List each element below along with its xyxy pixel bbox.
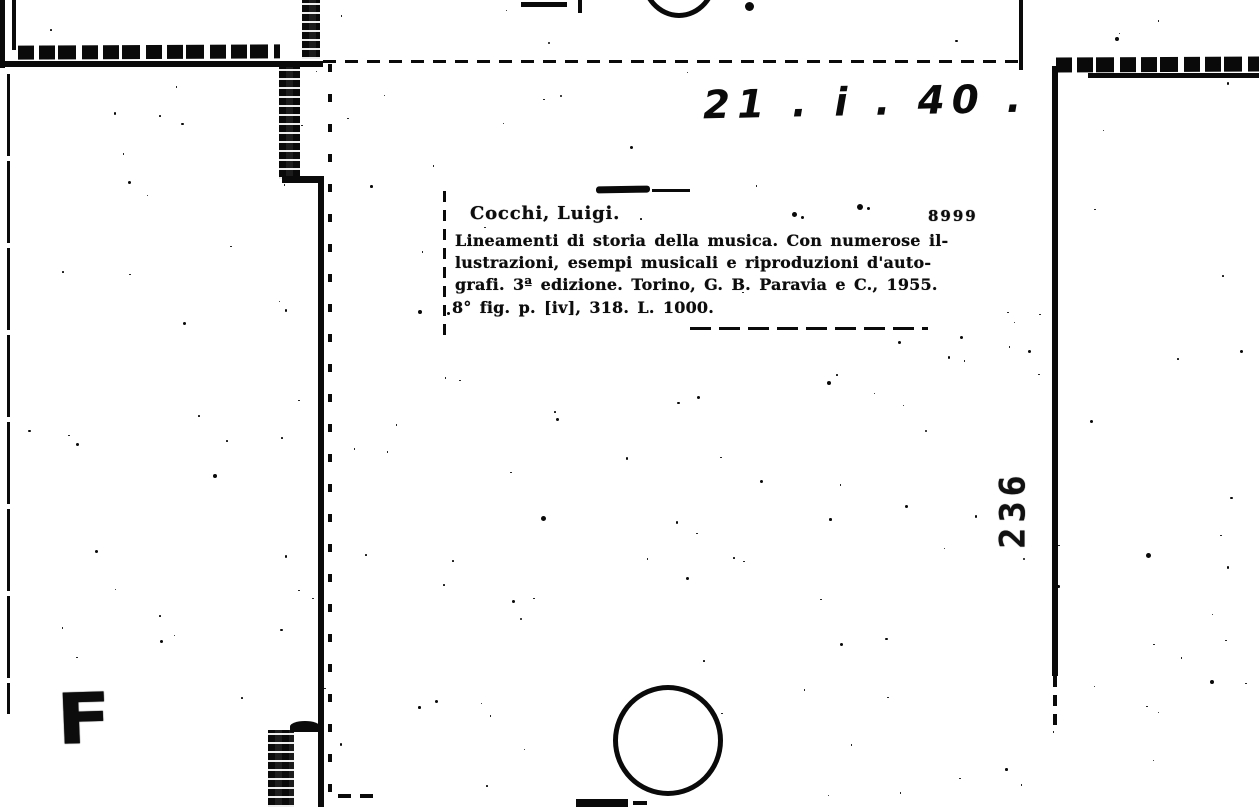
noise-speck (128, 181, 131, 184)
noise-speck (857, 204, 863, 210)
noise-speck (903, 405, 905, 407)
noise-speck (898, 341, 901, 344)
noise-speck (1181, 657, 1183, 659)
noise-speck (486, 785, 488, 787)
noise-speck (1158, 20, 1160, 22)
noise-speck (1158, 712, 1160, 714)
noise-speck (285, 309, 288, 312)
noise-speck (1153, 644, 1155, 646)
noise-speck (944, 548, 946, 550)
punch-hole-ring (613, 685, 723, 796)
noise-speck (887, 697, 889, 699)
noise-speck (885, 638, 888, 641)
noise-speck (1090, 420, 1093, 423)
noise-speck (560, 95, 563, 98)
noise-speck (827, 381, 831, 385)
right-card-edge-vertical-dashed (1053, 676, 1057, 731)
noise-speck (696, 533, 698, 535)
noise-speck (745, 2, 754, 11)
noise-speck (1222, 275, 1224, 277)
frame-number-rotated: 236 (997, 460, 1032, 560)
noise-speck (512, 600, 515, 603)
noise-speck (68, 435, 70, 437)
top-card-edge-dashed (323, 60, 1020, 63)
noise-speck (905, 505, 908, 508)
noise-speck (316, 71, 318, 73)
card-body-line: 8° fig. p. [iv], 318. L. 1000. (452, 298, 714, 317)
noise-speck (703, 660, 705, 662)
noise-speck (1058, 545, 1060, 547)
noise-speck (828, 795, 830, 797)
card-left-rule (443, 191, 446, 341)
card-bottom-dashed-rule (690, 327, 928, 330)
noise-speck (510, 472, 512, 474)
noise-speck (829, 518, 832, 521)
noise-speck (626, 457, 629, 460)
center-fold-dashed-line (328, 64, 332, 807)
noise-speck (1210, 680, 1214, 684)
noise-speck (62, 627, 64, 629)
noise-speck (298, 400, 300, 402)
noise-speck (76, 657, 78, 659)
bottom-edge-line (576, 799, 628, 807)
noise-speck (1009, 346, 1011, 348)
noise-speck (95, 550, 98, 553)
noise-speck (948, 356, 951, 359)
noise-speck (1005, 768, 1008, 771)
noise-speck (230, 246, 232, 248)
noise-speck (147, 195, 149, 197)
shelfmark-handwritten: 21 . i . 40 . (703, 77, 1029, 129)
card-heading: Cocchi, Luigi. (470, 203, 620, 224)
noise-speck (506, 10, 508, 12)
noise-speck (1119, 33, 1121, 35)
spine-bar-upper (279, 67, 300, 179)
noise-speck (840, 484, 842, 486)
noise-speck (341, 15, 343, 17)
noise-speck (955, 40, 958, 43)
noise-speck (556, 418, 559, 421)
noise-speck (445, 377, 447, 379)
noise-speck (435, 700, 438, 703)
noise-speck (677, 402, 680, 405)
noise-speck (1023, 558, 1026, 561)
noise-speck (743, 561, 745, 563)
noise-speck (554, 411, 556, 413)
card-body-line: lustrazioni, esempi musicali e riproduzi… (455, 253, 931, 272)
noise-speck (959, 778, 961, 780)
noise-speck (503, 123, 505, 125)
noise-speck (312, 598, 314, 600)
noise-speck (1227, 566, 1230, 569)
noise-speck (418, 310, 422, 314)
noise-speck (733, 557, 735, 559)
noise-speck (900, 792, 902, 794)
noise-speck (1153, 760, 1155, 762)
left-page-edge-top (0, 0, 5, 68)
noise-speck (114, 112, 117, 115)
spine-lower-curve (290, 721, 320, 732)
noise-speck (975, 515, 978, 518)
noise-speck (280, 629, 283, 632)
noise-speck (174, 635, 176, 637)
noise-speck (324, 688, 326, 690)
noise-speck (159, 115, 161, 117)
punch-hole-arc-top (640, 0, 718, 18)
bottom-edge-dash (633, 801, 647, 805)
noise-speck (418, 706, 421, 709)
noise-speck (1245, 683, 1247, 685)
noise-speck (1053, 731, 1055, 733)
card-body-line: Lineamenti di storia della musica. Con n… (455, 231, 948, 250)
noise-speck (246, 50, 248, 52)
noise-speck (285, 555, 288, 558)
right-card-edge-line (1088, 73, 1259, 78)
catalog-card-scan: 21 . i . 40 . Cocchi, Luigi. 8999 Lineam… (0, 0, 1259, 807)
noise-speck (1094, 209, 1096, 211)
noise-speck (443, 584, 445, 586)
noise-speck (481, 703, 483, 705)
noise-speck (384, 95, 386, 97)
noise-speck (123, 153, 125, 155)
center-fold-line (318, 180, 324, 807)
noise-speck (720, 457, 722, 459)
right-column-divider-top (1019, 0, 1023, 70)
noise-speck (284, 184, 286, 186)
card-body-line: grafi. 3ª edizione. Torino, G. B. Paravi… (455, 275, 938, 294)
noise-speck (721, 713, 723, 715)
noise-speck (520, 618, 523, 621)
noise-speck (801, 216, 804, 219)
noise-speck (213, 474, 217, 478)
top-card-edge-band (18, 44, 280, 59)
noise-speck (630, 146, 633, 149)
card-entry-number: 8999 (928, 207, 978, 225)
noise-speck (1227, 82, 1230, 85)
noise-speck (452, 560, 454, 562)
noise-speck (687, 72, 689, 74)
noise-speck (541, 516, 546, 521)
noise-speck (28, 430, 31, 433)
noise-speck (1021, 784, 1023, 786)
noise-speck (647, 558, 649, 560)
noise-speck (279, 301, 281, 303)
noise-speck (241, 697, 243, 699)
noise-speck (851, 744, 853, 746)
noise-speck (1220, 535, 1222, 537)
noise-speck (874, 393, 876, 395)
card-top-smudge (596, 186, 650, 194)
noise-speck (925, 430, 928, 433)
noise-speck (548, 42, 551, 45)
noise-speck (160, 640, 163, 643)
noise-speck (347, 118, 349, 120)
noise-speck (459, 380, 461, 382)
noise-speck (354, 448, 356, 450)
noise-speck (422, 251, 424, 253)
top-small-tick (578, 0, 582, 13)
noise-speck (760, 480, 763, 483)
right-card-edge-band (1056, 56, 1259, 72)
noise-speck (198, 415, 200, 417)
noise-speck (524, 749, 526, 751)
bottom-small-dashes (338, 794, 374, 798)
noise-speck (181, 123, 184, 126)
noise-speck (543, 99, 545, 101)
noise-speck (1028, 350, 1031, 353)
noise-speck (1057, 585, 1060, 588)
noise-speck (1007, 312, 1009, 314)
noise-speck (447, 312, 450, 315)
noise-speck (964, 360, 966, 362)
noise-speck (62, 271, 64, 273)
noise-speck (1094, 686, 1096, 688)
noise-speck (1039, 314, 1041, 316)
noise-speck (1038, 374, 1040, 376)
noise-speck (594, 213, 597, 216)
noise-speck (370, 185, 373, 188)
noise-speck (676, 521, 679, 524)
left-edge-tick (12, 0, 16, 50)
noise-speck (433, 165, 435, 167)
noise-speck (129, 274, 131, 276)
noise-speck (340, 743, 343, 746)
noise-speck (76, 443, 79, 446)
noise-speck (1225, 640, 1227, 642)
noise-speck (490, 715, 492, 717)
noise-speck (365, 554, 367, 556)
noise-speck (867, 207, 870, 210)
noise-speck (1240, 350, 1243, 353)
noise-speck (792, 212, 797, 217)
noise-speck (1177, 358, 1179, 360)
noise-speck (226, 440, 228, 442)
noise-speck (533, 598, 535, 600)
noise-speck (960, 336, 963, 339)
left-margin-line (7, 74, 10, 714)
noise-speck (298, 590, 300, 592)
noise-speck (840, 643, 843, 646)
noise-speck (820, 599, 822, 601)
noise-speck (1115, 37, 1119, 41)
noise-speck (301, 125, 303, 127)
noise-speck (1230, 497, 1233, 500)
noise-speck (804, 689, 806, 691)
spine-bar-above (302, 0, 320, 59)
noise-speck (1212, 614, 1214, 616)
noise-speck (159, 615, 161, 617)
noise-speck (57, 62, 60, 65)
noise-speck (484, 227, 486, 229)
noise-speck (1103, 130, 1105, 132)
noise-speck (686, 577, 689, 580)
noise-speck (1014, 322, 1016, 324)
noise-speck (50, 29, 52, 31)
noise-speck (115, 589, 117, 591)
noise-speck (640, 218, 642, 220)
top-card-edge-line (0, 61, 323, 67)
spine-bar-lower (268, 730, 294, 807)
noise-speck (281, 437, 283, 439)
noise-speck (836, 374, 838, 376)
noise-speck (1146, 553, 1151, 558)
noise-speck (387, 451, 389, 453)
top-small-dash (521, 2, 567, 7)
noise-speck (396, 424, 398, 426)
noise-speck (742, 292, 744, 294)
noise-speck (697, 396, 700, 399)
noise-speck (756, 185, 758, 187)
noise-speck (1146, 706, 1148, 708)
noise-speck (183, 322, 186, 325)
card-top-smudge-tail (652, 189, 690, 192)
noise-speck (176, 86, 178, 88)
stamp-letter: F (55, 683, 113, 755)
